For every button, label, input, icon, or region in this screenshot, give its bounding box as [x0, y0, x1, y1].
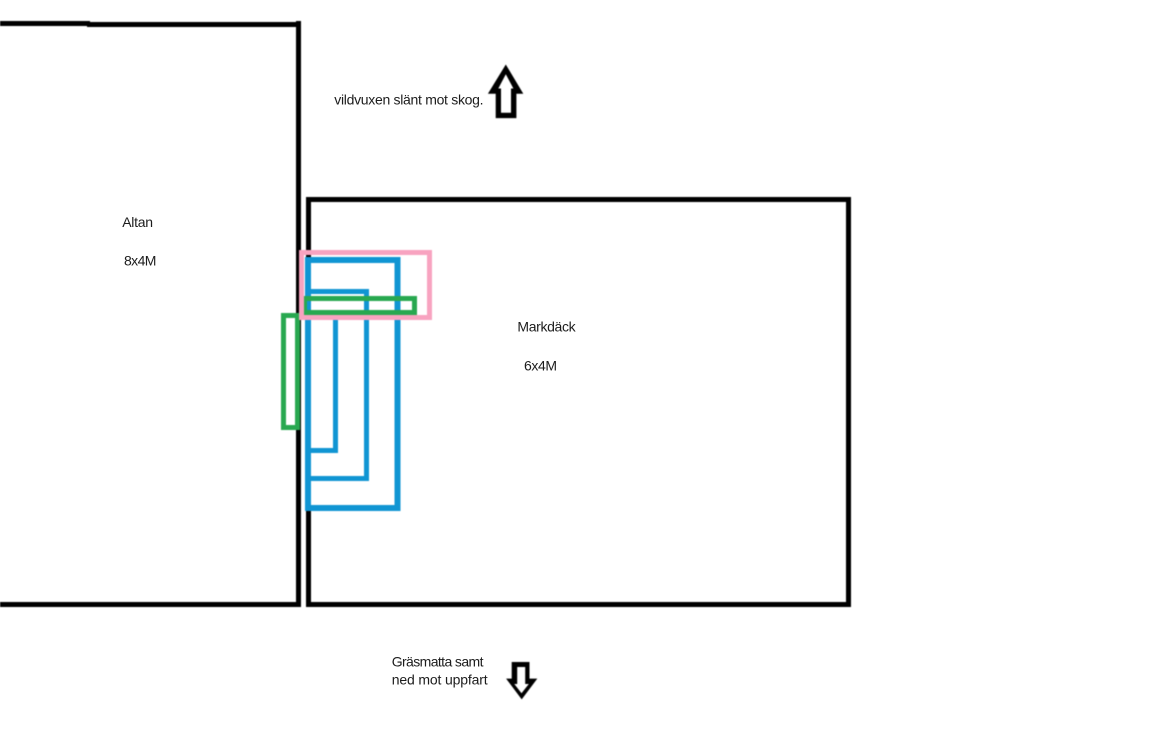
svg-text:Markdäck: Markdäck: [517, 319, 576, 335]
svg-text:Gräsmatta samt: Gräsmatta samt: [392, 653, 484, 669]
svg-text:6x4M: 6x4M: [524, 357, 557, 373]
svg-text:8x4M: 8x4M: [124, 252, 156, 268]
svg-text:ned mot uppfart: ned mot uppfart: [392, 672, 488, 688]
svg-text:vildvuxen slänt mot skog.: vildvuxen slänt mot skog.: [334, 92, 483, 108]
svg-text:Altan: Altan: [122, 214, 153, 230]
